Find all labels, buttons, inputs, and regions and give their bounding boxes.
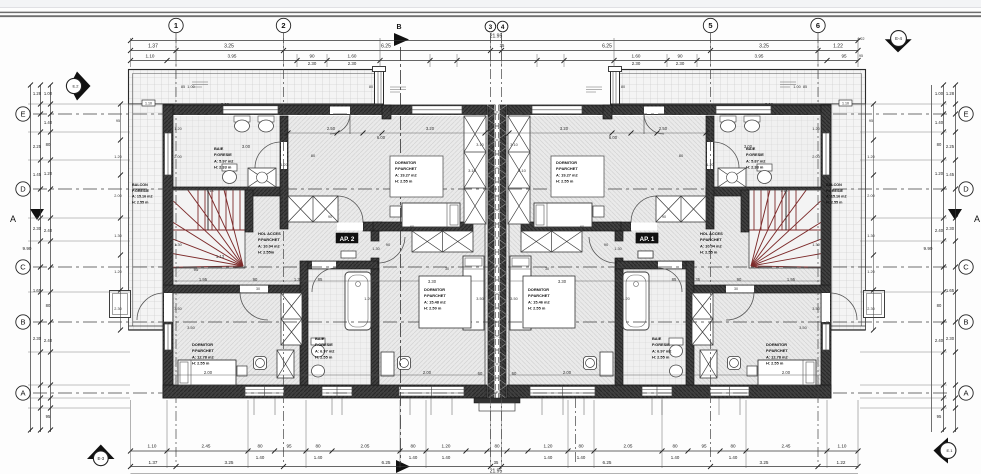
svg-text:3.50: 3.50 (476, 297, 483, 301)
svg-text:80: 80 (937, 303, 942, 308)
svg-text:95: 95 (869, 119, 873, 123)
svg-text:H: 2.55 m: H: 2.55 m (700, 250, 718, 255)
svg-text:3: 3 (489, 24, 493, 31)
svg-text:1.20: 1.20 (280, 163, 287, 167)
svg-text:80: 80 (46, 303, 51, 308)
svg-text:P.GRESIE: P.GRESIE (652, 342, 670, 347)
svg-text:H: 2.55 m: H: 2.55 m (556, 179, 574, 184)
svg-text:BAIE: BAIE (214, 146, 224, 151)
svg-text:AP. 2: AP. 2 (340, 236, 355, 243)
svg-text:A: A (10, 214, 16, 224)
svg-text:HOL ACCES: HOL ACCES (258, 231, 281, 236)
svg-text:1.40: 1.40 (729, 455, 738, 460)
svg-text:B: B (396, 24, 401, 31)
svg-text:1.45: 1.45 (33, 172, 42, 177)
svg-text:3.00: 3.00 (221, 102, 230, 107)
svg-text:21.95: 21.95 (490, 469, 503, 474)
svg-text:A: A (963, 389, 968, 398)
svg-text:1.10: 1.10 (838, 444, 847, 449)
svg-text:1.28: 1.28 (946, 91, 955, 96)
svg-text:1.10: 1.10 (148, 444, 157, 449)
svg-text:2.30: 2.30 (308, 61, 317, 66)
svg-text:1.45: 1.45 (946, 172, 955, 177)
svg-text:1.40: 1.40 (577, 455, 586, 460)
svg-text:2.00: 2.00 (204, 370, 213, 375)
svg-text:H: 2.55 m: H: 2.55 m (766, 361, 784, 366)
svg-text:35: 35 (494, 460, 499, 465)
svg-text:P.PARCHET: P.PARCHET (766, 348, 788, 353)
svg-text:2.30: 2.30 (676, 61, 685, 66)
svg-text:80: 80 (730, 444, 736, 449)
svg-text:1.20: 1.20 (544, 444, 553, 449)
svg-text:2.05: 2.05 (624, 444, 633, 449)
svg-text:1: 1 (174, 21, 178, 30)
svg-text:95: 95 (937, 414, 942, 419)
svg-text:1.13: 1.13 (781, 189, 788, 193)
svg-text:2.30: 2.30 (348, 61, 357, 66)
svg-text:2.00: 2.00 (114, 194, 121, 198)
svg-text:B: B (20, 318, 25, 327)
svg-text:A: 5.87 m2: A: 5.87 m2 (746, 158, 766, 163)
svg-text:2.00: 2.00 (563, 370, 572, 375)
svg-text:2.00: 2.00 (423, 370, 432, 375)
svg-text:P.PARCHET: P.PARCHET (556, 166, 578, 171)
svg-text:6: 6 (816, 21, 820, 30)
svg-text:1.65: 1.65 (946, 288, 955, 293)
svg-text:2.45: 2.45 (202, 444, 211, 449)
svg-text:1.20: 1.20 (114, 155, 121, 159)
svg-text:H: 2.55 m: H: 2.55 m (132, 200, 149, 204)
svg-text:1.20: 1.20 (812, 127, 819, 131)
svg-text:1.20: 1.20 (867, 270, 874, 274)
svg-text:1.40: 1.40 (935, 120, 944, 125)
svg-text:95: 95 (194, 267, 199, 272)
svg-text:D: D (20, 185, 26, 194)
svg-text:80: 80 (578, 444, 584, 449)
svg-text:90: 90 (309, 54, 315, 59)
svg-text:90: 90 (662, 215, 666, 219)
svg-text:80: 80 (621, 85, 625, 89)
svg-text:A: 19.27 m2: A: 19.27 m2 (556, 172, 578, 177)
svg-text:P.GRESIE: P.GRESIE (214, 152, 232, 157)
svg-text:A: 10.04 m2: A: 10.04 m2 (258, 243, 280, 248)
svg-text:3.30: 3.30 (428, 279, 437, 284)
svg-text:1.40: 1.40 (314, 455, 323, 460)
svg-text:1.13: 1.13 (216, 254, 225, 259)
svg-text:3.50: 3.50 (174, 307, 181, 311)
svg-text:P.GRESIE: P.GRESIE (826, 189, 843, 193)
svg-text:6.25: 6.25 (382, 460, 391, 465)
svg-text:80: 80 (257, 444, 263, 449)
svg-text:1.28: 1.28 (33, 91, 42, 96)
svg-text:1.30: 1.30 (867, 234, 874, 238)
svg-text:95: 95 (116, 119, 120, 123)
svg-text:1.10: 1.10 (146, 54, 155, 59)
svg-text:2.30: 2.30 (114, 307, 121, 311)
svg-text:3.50: 3.50 (301, 297, 308, 301)
svg-text:2.05: 2.05 (361, 444, 370, 449)
svg-text:30: 30 (545, 267, 549, 271)
svg-text:1.00: 1.00 (44, 91, 53, 96)
svg-text:1.22: 1.22 (858, 37, 865, 41)
svg-text:3.25: 3.25 (759, 44, 769, 50)
svg-text:A: 10.04 m2: A: 10.04 m2 (700, 243, 722, 248)
svg-text:85: 85 (318, 277, 323, 282)
svg-text:1.20: 1.20 (44, 171, 53, 176)
svg-text:80: 80 (494, 444, 500, 449)
svg-text:9.90: 9.90 (23, 246, 32, 251)
svg-text:30: 30 (256, 287, 260, 291)
svg-text:1.10: 1.10 (145, 102, 152, 106)
svg-text:3.00: 3.00 (765, 102, 774, 107)
svg-text:1.65: 1.65 (33, 288, 42, 293)
svg-text:30: 30 (734, 287, 738, 291)
svg-text:2.40: 2.40 (44, 338, 53, 343)
svg-text:BAIE: BAIE (315, 336, 325, 341)
svg-text:9.90: 9.90 (924, 246, 933, 251)
svg-text:3.95: 3.95 (755, 54, 764, 59)
svg-text:3.10: 3.10 (518, 168, 527, 173)
svg-text:2.30: 2.30 (867, 307, 874, 311)
svg-text:3.50: 3.50 (510, 297, 517, 301)
svg-text:1.35: 1.35 (651, 266, 658, 270)
svg-text:95: 95 (742, 189, 746, 193)
svg-text:1.20: 1.20 (114, 270, 121, 274)
svg-text:1.40: 1.40 (544, 455, 553, 460)
svg-text:DORMITOR: DORMITOR (192, 342, 213, 347)
svg-text:80: 80 (410, 444, 416, 449)
svg-text:6.25: 6.25 (602, 44, 612, 50)
svg-text:1.40: 1.40 (442, 455, 451, 460)
svg-text:BALCON: BALCON (132, 183, 148, 187)
svg-text:60: 60 (478, 371, 483, 376)
svg-text:1.60: 1.60 (632, 54, 641, 59)
svg-text:1.40: 1.40 (671, 455, 680, 460)
svg-text:C: C (20, 263, 26, 272)
svg-text:E-3: E-3 (97, 456, 104, 461)
svg-text:6.00: 6.00 (377, 135, 386, 140)
svg-text:2.30: 2.30 (632, 61, 641, 66)
svg-text:3.30: 3.30 (558, 279, 567, 284)
svg-text:HOL ACCES: HOL ACCES (700, 231, 723, 236)
svg-text:2.00: 2.00 (706, 133, 713, 137)
svg-text:DORMITOR: DORMITOR (528, 287, 549, 292)
svg-text:H: 2.55 m: H: 2.55 m (192, 361, 210, 366)
svg-text:BAIE: BAIE (652, 336, 662, 341)
svg-text:A: 15.16 m2: A: 15.16 m2 (132, 195, 153, 199)
svg-text:P.PARCHET: P.PARCHET (192, 348, 214, 353)
svg-text:80: 80 (672, 444, 678, 449)
svg-text:3.50: 3.50 (187, 325, 196, 330)
svg-text:1.00: 1.00 (935, 91, 944, 96)
svg-text:E-4: E-4 (895, 36, 902, 41)
svg-text:BALCON: BALCON (826, 183, 842, 187)
svg-text:1.20: 1.20 (867, 155, 874, 159)
svg-text:A: 6.97 m2: A: 6.97 m2 (315, 348, 335, 353)
svg-text:30: 30 (445, 267, 449, 271)
svg-text:P.PARCHET: P.PARCHET (528, 293, 550, 298)
svg-text:3.10: 3.10 (510, 143, 517, 147)
svg-text:90: 90 (677, 54, 683, 59)
svg-text:B: B (963, 318, 968, 327)
svg-text:60: 60 (512, 371, 517, 376)
svg-text:2.40: 2.40 (935, 338, 944, 343)
svg-text:21.95: 21.95 (490, 34, 503, 40)
svg-text:1.00: 1.00 (793, 85, 800, 89)
svg-text:1.35: 1.35 (294, 277, 303, 282)
svg-text:A: 12.78 m2: A: 12.78 m2 (766, 354, 788, 359)
svg-text:1.20: 1.20 (364, 297, 371, 301)
svg-text:5: 5 (708, 21, 712, 30)
svg-text:90: 90 (604, 242, 609, 247)
svg-text:3.20: 3.20 (426, 126, 435, 131)
svg-text:3.20: 3.20 (560, 126, 569, 131)
svg-text:1.20: 1.20 (706, 163, 713, 167)
svg-text:P.GRESIE: P.GRESIE (746, 152, 764, 157)
svg-text:P.GRESIE: P.GRESIE (132, 189, 149, 193)
svg-text:1.35: 1.35 (337, 266, 344, 270)
svg-text:H: 2.55 m: H: 2.55 m (528, 306, 546, 311)
svg-text:1.30: 1.30 (174, 243, 181, 247)
svg-text:E.2: E.2 (72, 84, 79, 89)
svg-text:3.10: 3.10 (468, 168, 477, 173)
svg-text:85: 85 (672, 277, 677, 282)
svg-text:A: 15.16 m2: A: 15.16 m2 (826, 195, 847, 199)
svg-text:H: 2.55 m: H: 2.55 m (652, 355, 670, 360)
svg-text:1.95: 1.95 (787, 277, 796, 282)
svg-text:3.25: 3.25 (760, 460, 769, 465)
svg-text:1.10: 1.10 (842, 102, 849, 106)
svg-text:95: 95 (841, 54, 847, 59)
svg-text:2.00: 2.00 (867, 194, 874, 198)
svg-text:1.40: 1.40 (44, 120, 53, 125)
svg-text:80: 80 (679, 153, 684, 158)
svg-text:1.20: 1.20 (442, 444, 451, 449)
svg-text:E.1: E.1 (946, 448, 953, 453)
svg-text:P.PARCHET: P.PARCHET (424, 293, 446, 298)
svg-text:A: 19.27 m2: A: 19.27 m2 (395, 172, 417, 177)
svg-text:1.30: 1.30 (372, 247, 379, 251)
svg-text:1.30: 1.30 (114, 234, 121, 238)
svg-text:3.10: 3.10 (476, 143, 483, 147)
svg-text:2.40: 2.40 (44, 228, 53, 233)
svg-text:90: 90 (737, 277, 742, 282)
svg-text:H: 2.50 m: H: 2.50 m (424, 306, 442, 311)
svg-text:3.50: 3.50 (799, 325, 808, 330)
svg-text:1.20: 1.20 (935, 171, 944, 176)
svg-text:2.30: 2.30 (946, 226, 955, 231)
svg-text:2.40: 2.40 (935, 228, 944, 233)
svg-text:1.37: 1.37 (148, 44, 158, 50)
svg-text:95: 95 (46, 414, 51, 419)
svg-text:85: 85 (181, 85, 185, 89)
svg-text:AP. 1: AP. 1 (640, 236, 655, 243)
svg-text:A: 15.46 m2: A: 15.46 m2 (528, 299, 550, 304)
svg-text:2.00: 2.00 (812, 155, 819, 159)
svg-text:A: 15.48 m2: A: 15.48 m2 (424, 299, 446, 304)
svg-text:2.45: 2.45 (782, 444, 791, 449)
svg-text:H: 2.55 m: H: 2.55 m (315, 355, 333, 360)
svg-text:A: 12.78 m2: A: 12.78 m2 (192, 354, 214, 359)
svg-text:95: 95 (286, 444, 292, 449)
svg-text:80: 80 (937, 142, 942, 147)
svg-text:2: 2 (281, 21, 285, 30)
svg-text:E: E (963, 110, 968, 119)
svg-text:P.PARCHET: P.PARCHET (700, 237, 722, 242)
svg-text:60: 60 (410, 225, 414, 229)
svg-text:C: C (963, 263, 969, 272)
svg-text:1.22: 1.22 (837, 460, 846, 465)
svg-text:3.50: 3.50 (812, 307, 819, 311)
svg-text:A: A (20, 389, 25, 398)
svg-text:95: 95 (859, 54, 863, 58)
svg-text:1.20: 1.20 (174, 127, 181, 131)
svg-text:80: 80 (46, 142, 51, 147)
svg-text:2.00: 2.00 (174, 155, 181, 159)
svg-text:3.00: 3.00 (242, 144, 251, 149)
svg-text:H: 2.55 m: H: 2.55 m (826, 200, 843, 204)
svg-text:2.30: 2.30 (33, 336, 42, 341)
svg-text:1.20: 1.20 (622, 297, 629, 301)
svg-text:95: 95 (701, 444, 707, 449)
svg-text:H: 2.55m: H: 2.55m (258, 250, 275, 255)
svg-text:2.30: 2.30 (946, 336, 955, 341)
svg-text:2.25: 2.25 (946, 144, 955, 149)
svg-text:6.25: 6.25 (603, 460, 612, 465)
svg-text:DORMITOR: DORMITOR (556, 160, 577, 165)
svg-text:A: 5.97 m2: A: 5.97 m2 (214, 158, 234, 163)
svg-text:1.30: 1.30 (614, 247, 621, 251)
svg-text:2.50: 2.50 (327, 126, 336, 131)
svg-text:6.00: 6.00 (609, 135, 618, 140)
svg-text:H: 2.38 m: H: 2.38 m (746, 165, 764, 170)
svg-text:2.50: 2.50 (659, 126, 668, 131)
svg-text:80: 80 (369, 85, 373, 89)
svg-text:1.60: 1.60 (348, 54, 357, 59)
svg-text:D: D (963, 185, 969, 194)
svg-text:1.37: 1.37 (149, 460, 158, 465)
svg-text:1.13: 1.13 (207, 189, 214, 193)
svg-text:90: 90 (328, 215, 332, 219)
svg-text:A: 6.97 m2: A: 6.97 m2 (652, 348, 672, 353)
svg-text:6.25: 6.25 (381, 44, 391, 50)
svg-text:2.25: 2.25 (33, 144, 42, 149)
svg-text:3.25: 3.25 (225, 460, 234, 465)
svg-text:4: 4 (501, 24, 505, 31)
svg-text:H: 2.55 m: H: 2.55 m (395, 179, 413, 184)
svg-text:80: 80 (311, 153, 316, 158)
svg-text:1.22: 1.22 (833, 44, 843, 50)
svg-text:2.30: 2.30 (33, 226, 42, 231)
svg-text:DORMITOR: DORMITOR (424, 287, 445, 292)
svg-text:3.50: 3.50 (685, 297, 692, 301)
svg-text:3.95: 3.95 (228, 54, 237, 59)
svg-text:3.25: 3.25 (224, 44, 234, 50)
svg-text:80: 80 (315, 444, 321, 449)
svg-text:1.35: 1.35 (692, 277, 701, 282)
svg-text:P.PARCHET: P.PARCHET (258, 237, 280, 242)
svg-text:35: 35 (500, 43, 505, 48)
svg-text:DORMITOR: DORMITOR (395, 160, 416, 165)
svg-text:P.GRESIE: P.GRESIE (315, 342, 333, 347)
svg-text:60: 60 (580, 225, 584, 229)
svg-text:1.40: 1.40 (409, 455, 418, 460)
svg-text:BAIE: BAIE (746, 146, 756, 151)
svg-text:1.40: 1.40 (256, 455, 265, 460)
svg-text:A: A (974, 214, 980, 224)
svg-text:DORMITOR: DORMITOR (766, 342, 787, 347)
svg-text:E: E (20, 110, 25, 119)
svg-text:95: 95 (248, 189, 252, 193)
svg-text:1.30: 1.30 (812, 243, 819, 247)
svg-text:85: 85 (803, 85, 807, 89)
svg-text:1.95: 1.95 (199, 277, 208, 282)
svg-text:H: 2.33 m: H: 2.33 m (214, 165, 232, 170)
svg-text:90: 90 (253, 277, 258, 282)
svg-text:P.PARCHET: P.PARCHET (395, 166, 417, 171)
svg-text:90: 90 (386, 242, 391, 247)
svg-text:2.00: 2.00 (782, 370, 791, 375)
